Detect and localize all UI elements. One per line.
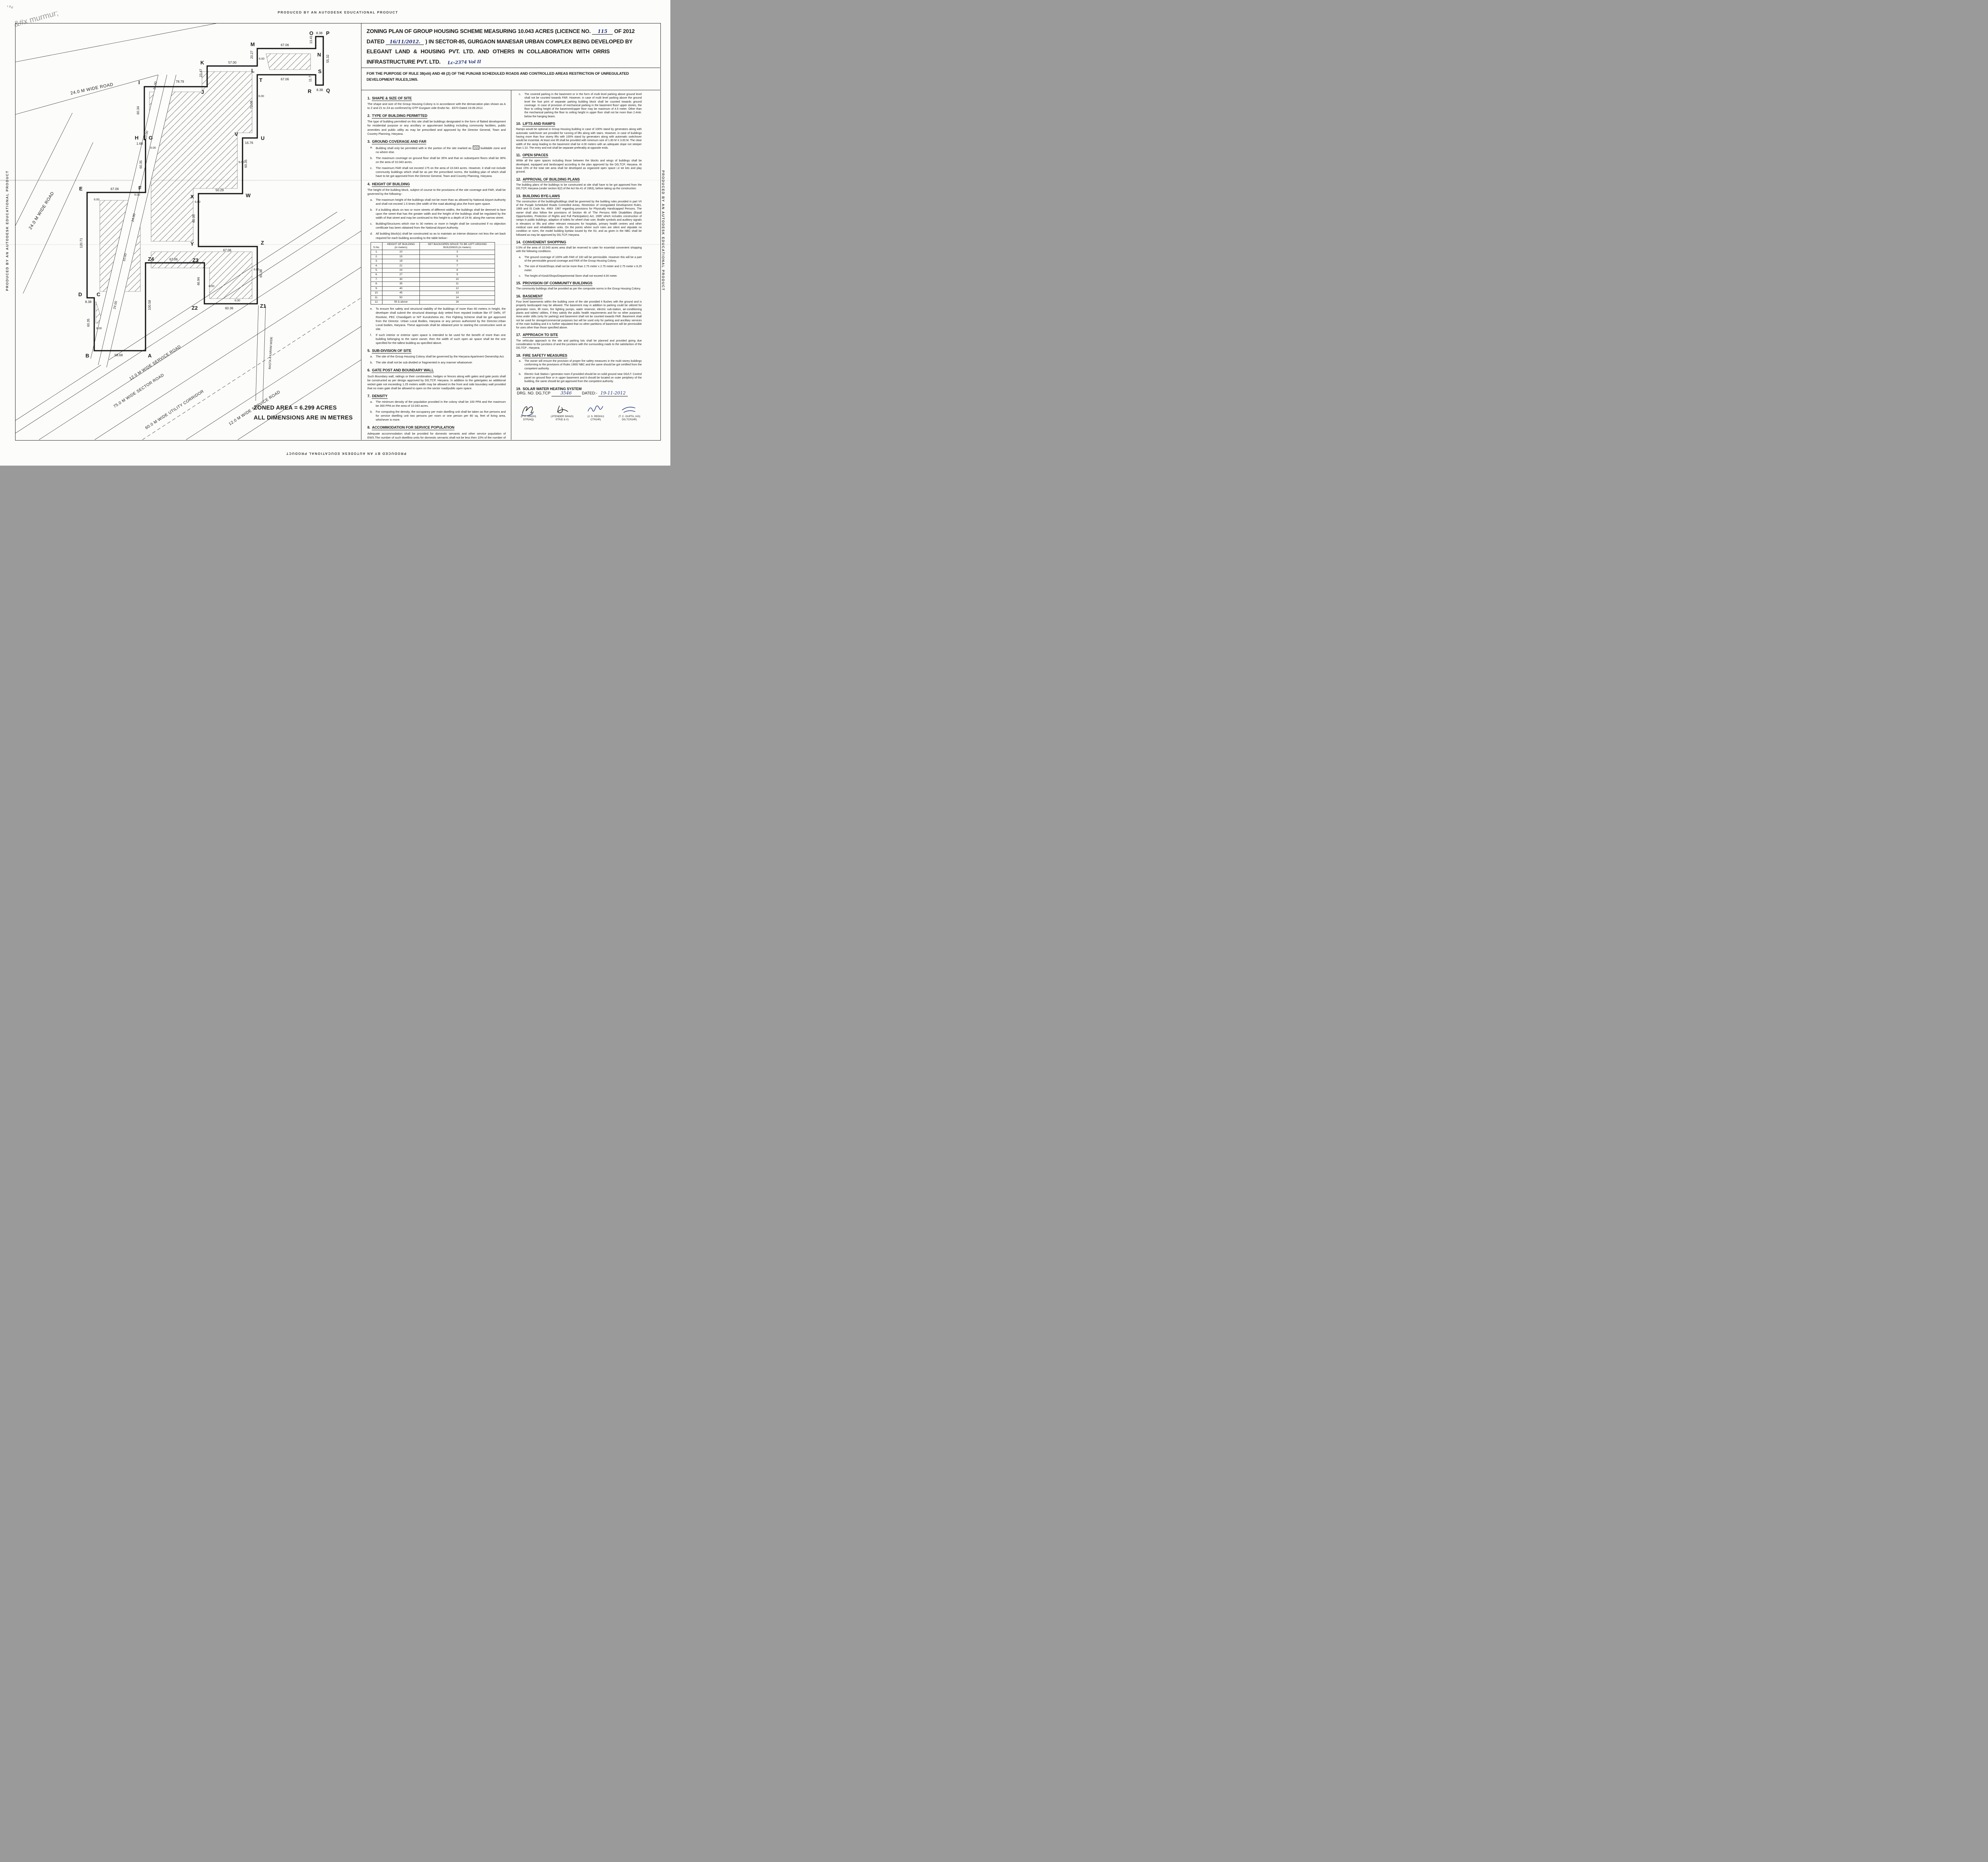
section-paragraph: Ramps would be optional in Group Housing… [516,128,642,150]
zoned-area-line-2: ALL DIMENSIONS ARE IN METRES [254,415,353,421]
section-number: 13. [516,194,521,198]
column-divider [511,90,511,440]
title-block: ZONING PLAN OF GROUP HOUSING SCHEME MEAS… [367,26,659,67]
setback-label: 6.00 [259,57,264,60]
road-label-service-1: 12.0 M WIDE SERVICE ROAD [129,344,182,381]
vertex-label: F [138,185,142,191]
road-line-utility-2 [186,326,361,440]
vertex-label: U [261,135,264,141]
dim-label: 67.06 [281,43,289,47]
section-title: DENSITY [372,394,387,399]
vertex-label: S [318,68,322,74]
lettered-item: d.All building block(s) shall be constru… [367,232,506,240]
rasta-label: RASTA 4 KARAM WIDE [268,337,273,369]
section-paragraph: Four level basements within the building… [516,300,642,330]
dim-label: 20.27 [250,50,254,59]
table-row: 10.4513 [371,291,495,295]
table-cell: 6. [371,273,382,277]
road-label-24m-west: 24.0 M WIDE ROAD [28,191,55,231]
section-number: 14. [516,240,521,244]
dim-label: 16.76 [245,141,253,145]
dim-label: 67.06 [281,77,289,81]
section: 11.OPEN SPACESWhile all the open spaces … [516,153,642,174]
section-title: HEIGHT OF BUILDING [372,182,410,187]
item-label: b. [370,410,376,422]
regulations-column-left: 1.SHAPE & SIZE OF SITEThe shape and size… [367,93,506,439]
vertex-label: A [148,353,152,359]
setback-label: 6.00 [150,146,156,150]
vertex-label: Z4 [148,256,154,262]
lettered-item: c.The height of Kiosk/Shops/Departmental… [516,274,642,278]
section-paragraph: The community buildings shall be provide… [516,287,642,291]
signature-icon [620,404,639,416]
section-heading: 7.DENSITY [367,394,506,398]
table-cell: 55 & above [382,300,419,304]
item-label: a. [519,256,524,263]
table-row: 8.3511 [371,282,495,286]
section-paragraph: The vehicular approach to the site and p… [516,339,642,350]
vertex-label: P [326,30,330,36]
subtitle: FOR THE PURPOSE OF RULE 38(xlii) AND 48 … [367,70,656,82]
section-heading: 19.SOLAR WATER HEATING SYSTEM [516,387,642,390]
vertex-label: K [200,60,204,66]
title-rule [361,68,660,68]
vertex-label: Z1 [260,303,266,309]
vertex-label: B [85,353,89,359]
section: 19.SOLAR WATER HEATING SYSTEMThe provisi… [516,387,642,390]
section-number: 6. [367,368,370,372]
item-label: b. [370,208,376,220]
table-cell: 13 [419,291,495,295]
table-cell: 4. [371,264,382,268]
item-text: Electric Sub Station / generator room if… [524,373,642,384]
dim-label: 60.35 [139,160,143,169]
item-label: b. [519,265,524,272]
section-title: SOLAR WATER HEATING SYSTEM [522,387,581,390]
item-text: The owner will ensure the provision of p… [524,359,642,371]
section: 2.TYPE OF BUILDING PERMITTEDThe type of … [367,114,506,136]
item-label: d. [370,232,376,240]
signatory-title: CTP(HR) [579,418,612,421]
dim-label: 8.38 [85,300,92,304]
dim-label: 23.47 [199,69,203,77]
title-text-1: ZONING PLAN OF GROUP HOUSING SCHEME MEAS… [367,28,591,34]
item-text: To ensure fire safety and structural sta… [376,307,506,331]
section-number: 1. [367,96,370,100]
item-text: For computing the density, the occupancy… [376,410,506,422]
title-line-3: ELEGANT LAND & HOUSING PVT. LTD. AND OTH… [367,47,659,57]
vertex-label: Z [261,240,264,246]
table-header-cell: S.No. [371,242,382,250]
item-text: All building block(s) shall be construct… [376,232,506,240]
lettered-item: b.The size of Kiosk/Shops shall not be m… [516,265,642,272]
table-row: 12.55 & above16 [371,300,495,304]
vertex-label: Z2 [192,305,198,311]
item-label: a. [370,355,376,359]
section: 7.DENSITYa.The minimum density of the po… [367,394,506,422]
item-text: Building/Structures which rise to 30 met… [376,222,506,230]
setback-label: 6.00 [254,268,259,271]
table-cell: 35 [382,282,419,286]
signatory-name: (T. C. GUPTA, IAS) [613,415,646,418]
section-number: 8. [367,425,370,429]
section-heading: 16.BASEMENT [516,295,642,298]
dim-label: 57.00 [228,60,237,64]
section-number: 18. [516,353,521,357]
setback-table: S.No.HEIGHT OF BUILDING (in meters)SET B… [371,242,495,305]
section-heading: 11.OPEN SPACES [516,153,642,157]
dim-label: 58.68 [115,353,123,357]
section: 8.ACCOMMODATION FOR SERVICE POPULATIONAd… [367,425,506,439]
section: 5.SUB-DIVISION OF SITEa.The site of the … [367,349,506,365]
zoned-area-line-1: ZONED AREA = 6.299 ACRES [254,405,337,411]
table-cell: 3. [371,259,382,264]
section: 18.FIRE SAFETY MEASURESa.The owner will … [516,354,642,384]
table-header-row: S.No.HEIGHT OF BUILDING (in meters)SET B… [371,242,495,250]
vertex-label: T [259,77,262,83]
road-line-west-2 [23,142,93,293]
setback-label: 6.00 [235,299,240,302]
section: 12.APPROVAL OF BUILDING PLANSThe buildin… [516,178,642,191]
lettered-item: b.The maximum coverage on ground floor s… [367,156,506,164]
drg-line: DRG. NO. DG,TCP 3546 DATED:- 19-11-2012 [517,390,643,396]
table-cell: 5. [371,268,382,273]
dim-label: 8.38 [316,88,323,92]
section-title: APPROVAL OF BUILDING PLANS [522,177,580,182]
item-text: The minimum density of the population pr… [376,400,506,408]
table-row: 2.155 [371,254,495,259]
table-cell: 8. [371,282,382,286]
dim-label: 67.06 [169,257,178,261]
item-text: The height of Kiosk/Shops/Departmental S… [524,274,642,278]
section-title: FIRE SAFETY MEASURES [522,353,567,358]
signatory-name: (JITENDER SIHAG) [546,415,579,418]
section-heading: 13.BUILDING BYE-LAWS [516,194,642,198]
section-number: 11. [516,153,521,157]
item-text: The maximum height of the buildings shal… [376,198,506,206]
item-text: The maximum coverage on ground floor sha… [376,156,506,164]
section-paragraph: The height of the building block, subjec… [367,188,506,196]
buildable-zone-3 [151,252,252,299]
section: 4.HEIGHT OF BUILDINGThe height of the bu… [367,182,506,346]
drg-dated-label: DATED:- [582,391,597,396]
dated-blank: 16/11/2012. [386,39,424,45]
lettered-item: b.Electric Sub Station / generator room … [516,373,642,384]
table-cell: 50 [382,295,419,300]
dim-label: 78.79 [176,80,184,83]
section-number: 10. [516,122,521,126]
dim-label: 8.38 [316,31,323,35]
table-cell: 10 [419,277,495,282]
section-heading: 6.GATE POST AND BOUNDARY WALL [367,368,506,372]
setback-label: 6.00 [258,94,264,98]
table-cell: 9 [419,273,495,277]
section-title: PROVISION OF COMMUNITY BUILDINGS [522,281,592,286]
table-cell: 27 [382,273,419,277]
vertex-label: I [138,80,140,85]
dim-label: 60.35 [244,159,248,168]
lettered-item: b.If a building abuts on two or more str… [367,208,506,220]
section-number: 5. [367,349,370,353]
table-cell: 45 [382,291,419,295]
table-row: 7.3010 [371,277,495,282]
item-label: b. [519,373,524,384]
dim-label: 60.35 [192,214,196,223]
item-label: a. [370,400,376,408]
table-cell: 16 [419,300,495,304]
signature-icon [519,404,538,416]
item-text: Building shall only be permitted with in… [376,146,506,154]
vertex-label: H [135,135,138,141]
road-line-service-1 [15,212,337,421]
section-heading: 17.APPROACH TO SITE [516,333,642,337]
vertex-label: R [308,88,312,94]
lettered-item: c.The maximum FAR shall not exceed 175 o… [367,166,506,178]
item-label: c. [370,166,376,178]
title-text-2: OF 2012 [614,28,635,34]
lettered-item: a.The owner will ensure the provision of… [516,359,642,371]
section-paragraph: The type of building permitted on this s… [367,120,506,136]
dim-label: 13.41 [309,35,313,44]
autodesk-watermark-right: PRODUCED BY AN AUTODESK EDUCATIONAL PROD… [661,119,665,342]
lettered-item: a.The minimum density of the population … [367,400,506,408]
section: 14.CONVENIENT SHOPPING0.5% of the area o… [516,241,642,278]
item-label: e. [370,307,376,331]
section-title: APPROACH TO SITE [522,333,558,338]
section-title: BASEMENT [522,294,543,299]
vertex-label: L [251,68,254,74]
section-title: TYPE OF BUILDING PERMITTED [372,114,427,118]
vertex-label: N [317,52,321,58]
section-number: 12. [516,177,521,181]
vertex-label: E [79,186,83,192]
section-paragraph: While all the open spaces including thos… [516,159,642,174]
section: 6.GATE POST AND BOUNDARY WALLSuch Bounda… [367,368,506,390]
section-heading: 1.SHAPE & SIZE OF SITE [367,96,506,100]
lettered-item: f.If such interior or exterior open spac… [367,333,506,345]
site-plan: I J K L M N O P Q R S T U V W X Y Z Z1 Z… [15,23,361,440]
road-line-west-1 [15,113,72,250]
file-no-handwritten: Lc-2374 Vol II [447,56,481,68]
section: 1.SHAPE & SIZE OF SITEThe shape and size… [367,96,506,110]
section-number: 4. [367,182,370,186]
vertex-label: O [309,30,313,36]
dim-label: 67.06 [223,248,231,252]
autodesk-watermark-bottom: PRODUCED BY AN AUTODESK EDUCATIONAL PROD… [262,452,429,456]
section-title: SUB-DIVISION OF SITE [372,349,411,353]
item-text: If such interior or exterior open space … [376,333,506,345]
buildable-zone-hatch-swatch [473,146,480,150]
section: 3.GROUND COVERAGE AND FARa.Building shal… [367,140,506,179]
table-row: 6.279 [371,273,495,277]
zoning-plan-sheet: PRODUCED BY AN AUTODESK EDUCATIONAL PROD… [0,0,670,466]
section-number: 3. [367,140,370,144]
section-heading: 3.GROUND COVERAGE AND FAR [367,140,506,144]
vertex-label: D [78,291,82,297]
section-heading: 2.TYPE OF BUILDING PERMITTED [367,114,506,118]
table-header-cell: HEIGHT OF BUILDING (in meters) [382,242,419,250]
vertex-label: M [250,41,255,47]
section-title: CONVENIENT SHOPPING [522,240,566,245]
autodesk-watermark-left: PRODUCED BY AN AUTODESK EDUCATIONAL PROD… [5,119,9,342]
licence-no-blank: 115 [592,29,613,35]
setback-label: 6.00 [96,326,102,330]
setback-label: 6.00 [195,200,200,204]
regulations-column-right: c.The covered parking in the basement or… [516,93,642,390]
setback-label: 6.00 [209,284,214,288]
title-line-4: INFRASTRUCTURE PVT. LTD. Lc-2374 Vol II [367,57,659,68]
drg-number-handwritten: 3546 [561,390,572,396]
drg-date-blank: 19-11-2012 [598,390,628,396]
table-cell: 6 [419,259,495,264]
item-text: The covered parking in the basement or i… [524,93,642,118]
plan-text-divider [361,23,361,440]
item-label: a. [370,146,376,154]
item-label: b. [370,156,376,164]
item-label: b. [370,361,376,365]
item-text: The site shall not be sub divided or fra… [376,361,506,365]
table-cell: 7. [371,277,382,282]
dim-label: 55.32 [326,54,330,63]
section-heading: 10.LIFTS AND RAMPS [516,122,642,126]
vertex-label: W [246,192,251,198]
licence-no-handwritten: 115 [598,29,607,34]
section-number: 7. [367,394,370,398]
section-number: 16. [516,294,521,298]
dim-label: 72.08 [249,101,253,109]
item-label: a. [370,198,376,206]
section-paragraph: The shape and size of the Group Housing … [367,102,506,110]
table-row: 9.4012 [371,286,495,291]
section: 15.PROVISION OF COMMUNITY BUILDINGSThe c… [516,282,642,291]
table-cell: 12. [371,300,382,304]
signatory: (T. C. GUPTA, IAS)DG,TCP(HR) [613,404,646,421]
title-line-1: ZONING PLAN OF GROUP HOUSING SCHEME MEAS… [367,26,659,37]
vertex-label: Q [326,87,330,93]
table-cell: 8 [419,268,495,273]
section-title: OPEN SPACES [522,153,548,158]
table-cell: 10 [382,250,419,254]
drg-date-handwritten: 19-11-2012 [600,390,625,396]
setback-label: 6.00 [134,193,140,196]
buildable-zone-1 [266,54,311,70]
dim-label: 100.58 [148,300,151,310]
table-cell: 21 [382,264,419,268]
rasta-line-2 [263,305,266,402]
table-cell: 12 [419,286,495,291]
lettered-item: e.To ensure fire safety and structural s… [367,307,506,331]
section-paragraph: 0.5% of the area of 10.043 acres area sh… [516,246,642,254]
section-heading: 8.ACCOMMODATION FOR SERVICE POPULATION [367,425,506,429]
lettered-item: a.The maximum height of the buildings sh… [367,198,506,206]
dated-handwritten: 16/11/2012. [390,39,421,45]
table-cell: 18 [382,259,419,264]
signatory-name: (J. S. REDHU) [579,415,612,418]
table-cell: 24 [382,268,419,273]
section-paragraph: The construction of the building/buildin… [516,200,642,237]
signatory: (JITENDER SIHAG)STP(E & V) [546,404,579,421]
dim-label: 1.68 [136,142,143,146]
section-heading: 18.FIRE SAFETY MEASURES [516,354,642,357]
section: 13.BUILDING BYE-LAWSThe construction of … [516,194,642,237]
vertex-label: Z3 [192,257,198,263]
autodesk-watermark-top: PRODUCED BY AN AUTODESK EDUCATIONAL PROD… [254,10,421,14]
item-label: c. [519,274,524,278]
table-row: 5.248 [371,268,495,273]
table-cell: 40 [382,286,419,291]
dim-label: 11.73 [308,74,312,82]
item-label: f. [370,333,376,345]
title-line-2: DATED 16/11/2012. ) IN SECTOR-85, GURGAO… [367,37,659,47]
table-row: 4.217 [371,264,495,268]
lettered-item: c.Building/Structures which rise to 30 m… [367,222,506,230]
vertex-label: G [149,135,153,141]
section-title: SHAPE & SIZE OF SITE [372,96,412,101]
table-cell: 9. [371,286,382,291]
vertex-label: Y [190,241,194,247]
signatory-title: DG,TCP(HR) [613,418,646,421]
lettered-item: b.For computing the density, the occupan… [367,410,506,422]
table-cell: 1. [371,250,382,254]
section-title: ACCOMMODATION FOR SERVICE POPULATION [372,425,454,430]
section-number: 2. [367,114,370,118]
section-heading: 12.APPROVAL OF BUILDING PLANS [516,178,642,181]
section-number: 15. [516,281,521,285]
section-number: 19. [516,387,521,390]
table-header-cell: SET BACK/OPEN SPACE TO BE LEFT AROUND BU… [419,242,495,250]
section-heading: 14.CONVENIENT SHOPPING [516,241,642,244]
vertex-label: V [235,131,238,137]
vertex-label: X [190,194,194,200]
signature-block: (P. P. SINGH)DTP(HQ)(JITENDER SIHAG)STP(… [512,404,646,421]
road-line-ne-1 [15,23,270,62]
table-cell: 10. [371,291,382,295]
signatory-title: DTP(HQ) [512,418,545,421]
signature-icon [553,404,571,416]
pencil-scribble: ′∿ [6,2,15,12]
table-row: 11.5014 [371,295,495,300]
item-text: The ground coverage of 100% with FAR of … [524,256,642,263]
section-title: GATE POST AND BOUNDARY WALL [372,368,434,373]
lettered-item: a.The ground coverage of 100% with FAR o… [516,256,642,263]
section-paragraph: Such Boundary wall, railings or their co… [367,375,506,390]
section: c.The covered parking in the basement or… [516,93,642,118]
table-cell: 3 [419,250,495,254]
title-text-5: INFRASTRUCTURE PVT. LTD. [367,59,441,65]
drg-number-blank: 3546 [551,390,581,396]
signatory-title: STP(E & V) [546,418,579,421]
road-label-sector: 75.0 M WIDE SECTOR ROAD [113,373,165,409]
dim-label: 120.71 [79,238,83,248]
dim-label: 67.06 [111,187,119,191]
signatory-name: (P. P. SINGH) [512,415,545,418]
road-label-utility: 60.0 M WIDE UTILITY CORRIDOR [145,389,205,431]
dim-label: 60.34 [136,106,140,115]
section-title: LIFTS AND RAMPS [522,122,555,126]
dim-label: 60.35 [86,318,90,327]
item-label: c. [370,222,376,230]
table-row: 3.186 [371,259,495,264]
dim-label: 60.36 [225,306,233,310]
section-number: 17. [516,333,521,337]
table-cell: 2. [371,254,382,259]
table-cell: 11. [371,295,382,300]
item-text: The site of the Group Housing Colony sha… [376,355,506,359]
item-text: If a building abuts on two or more stree… [376,208,506,220]
dim-label: 50.29 [215,188,224,192]
table-cell: 5 [419,254,495,259]
rasta-line-1 [256,305,258,401]
